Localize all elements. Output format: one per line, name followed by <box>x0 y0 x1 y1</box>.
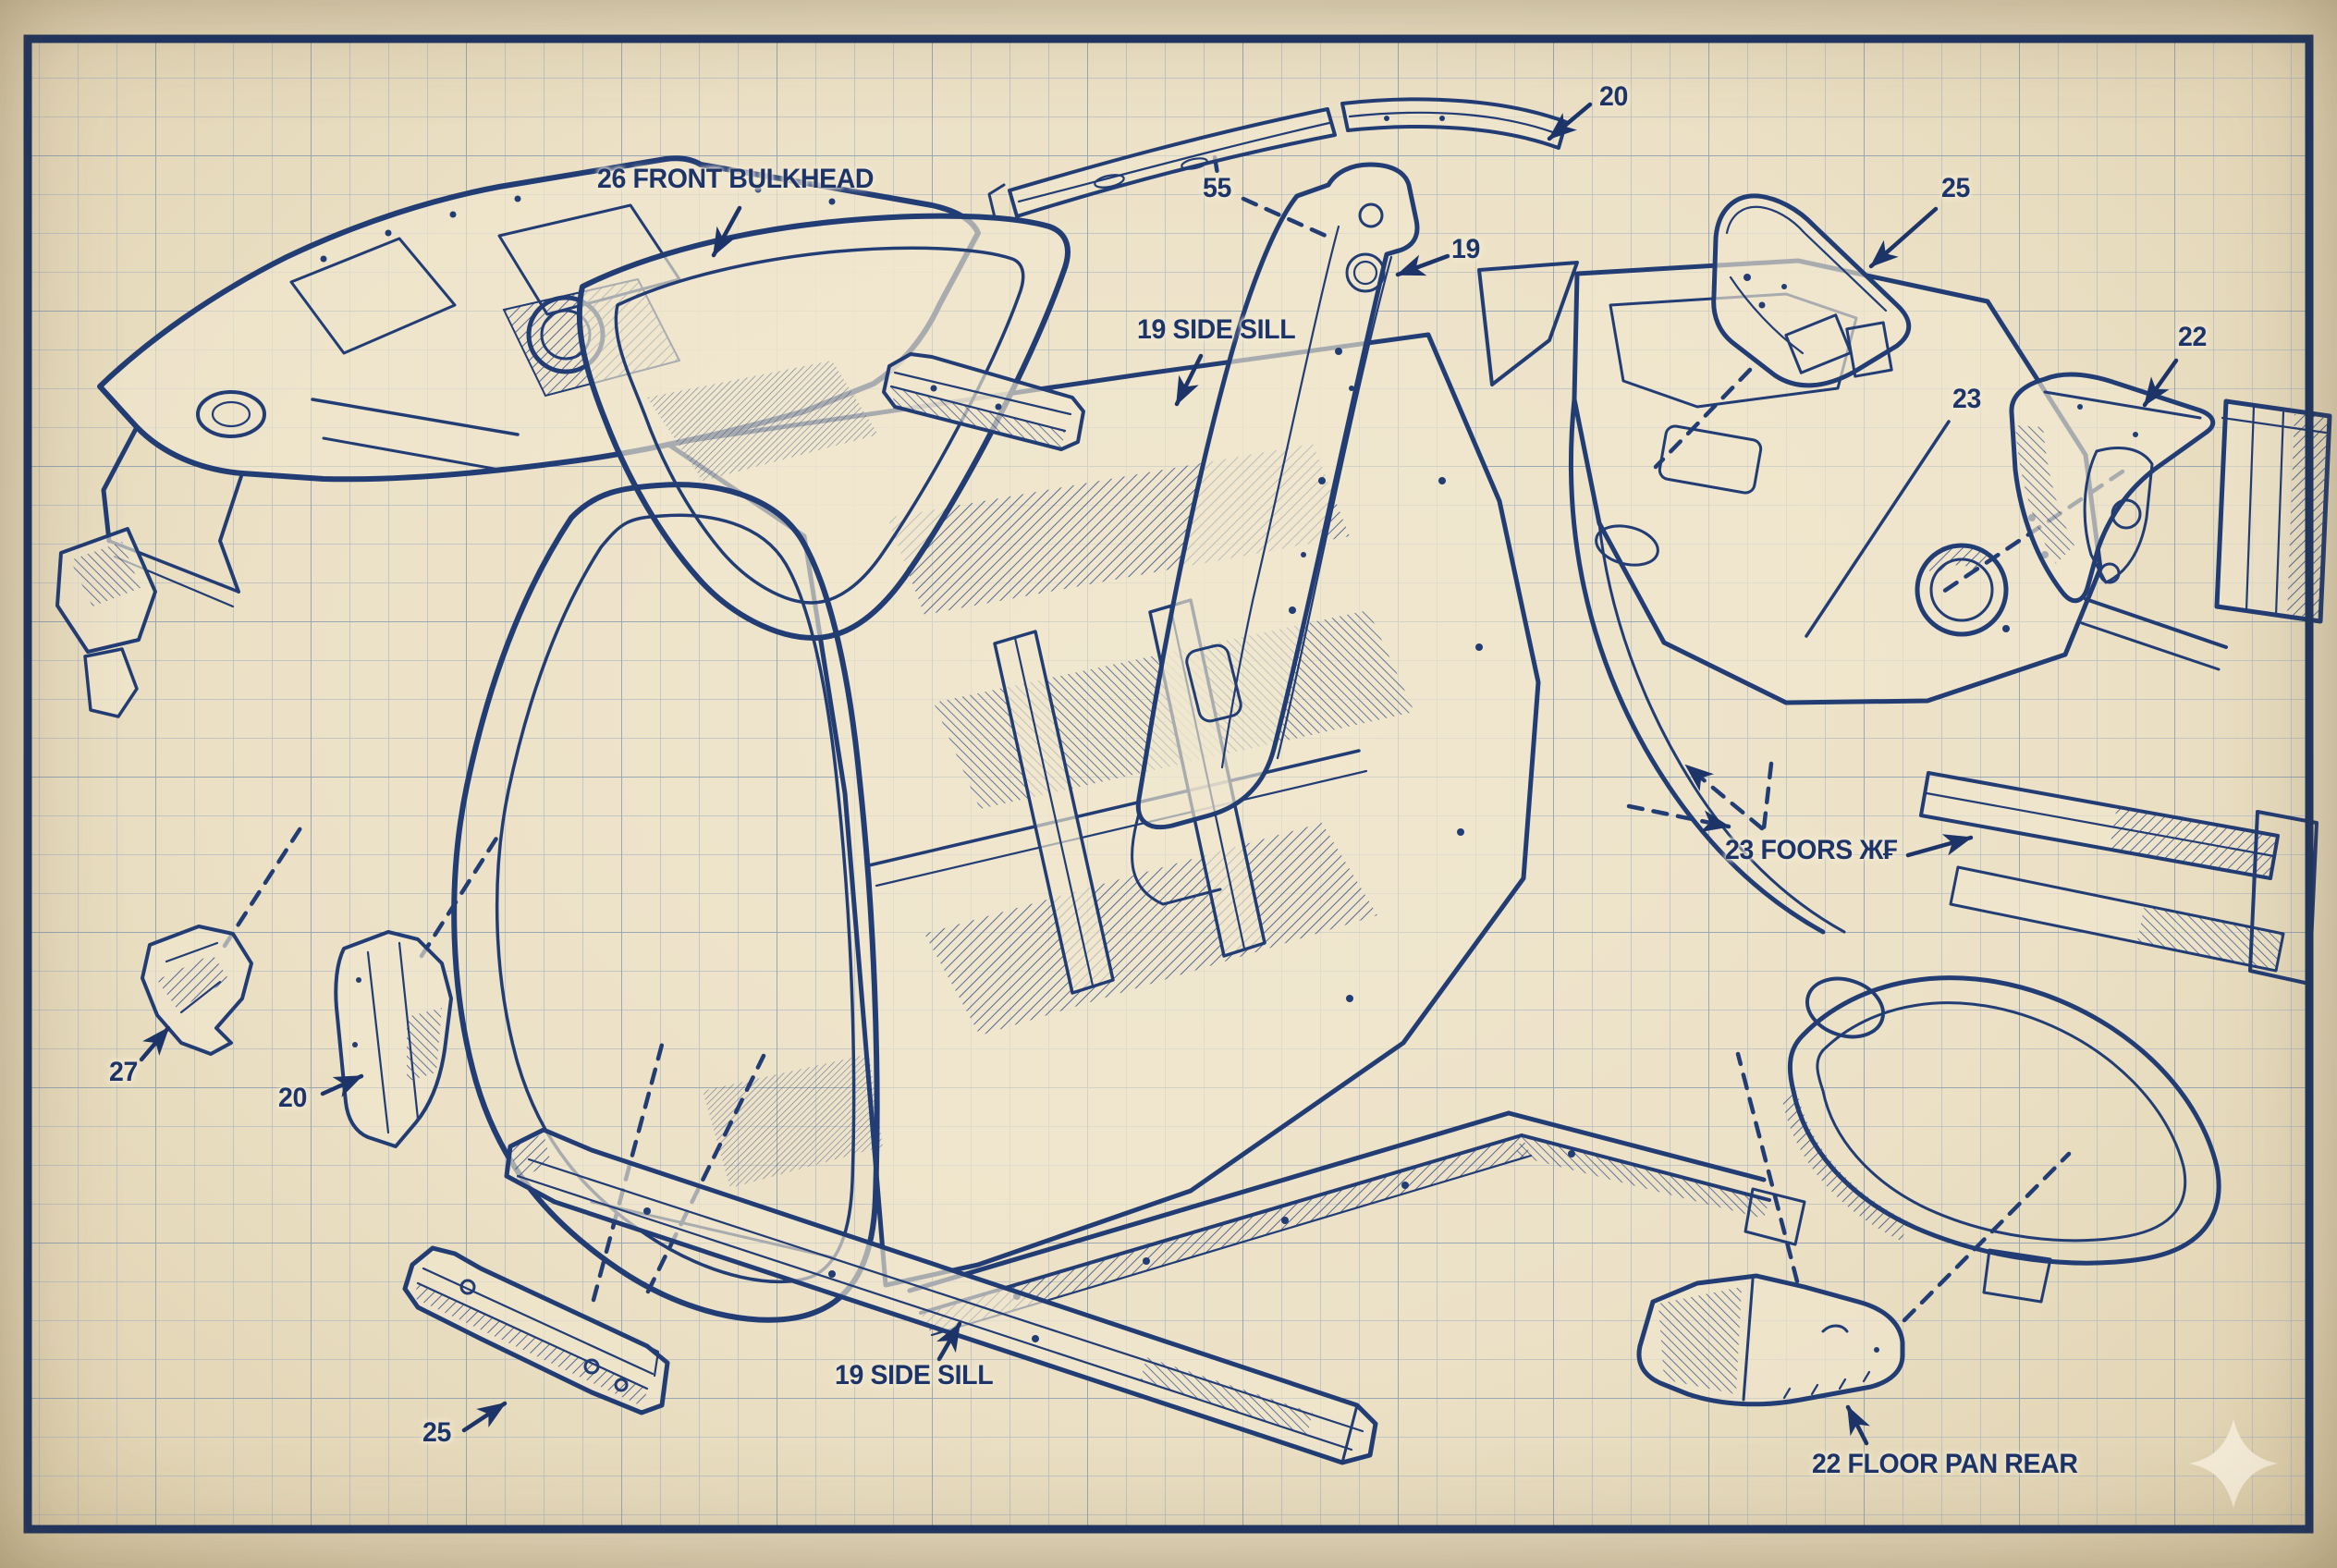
label-side-sill-upper: 19 SIDE SILL <box>1137 316 1295 344</box>
label-shock-tower-23: 23 <box>1952 386 1981 413</box>
label-front-bulkhead: 26 FRONT BULKHEAD <box>597 165 874 193</box>
label-quarter-25: 25 <box>1941 175 1970 202</box>
label-bracket-22: 22 <box>2178 324 2207 351</box>
label-b-pillar-19: 19 <box>1451 236 1480 263</box>
label-floors-23: 23 FOORS Ж₣ <box>1725 837 1897 864</box>
blueprint-page: 26 FRONT BULKHEAD 20 55 19 19 SIDE SILL … <box>0 0 2337 1568</box>
label-bracket-27: 27 <box>109 1059 138 1086</box>
label-floor-pan-rear: 22 FLOOR PAN REAR <box>1812 1451 2078 1478</box>
blueprint-drawing <box>0 0 2337 1568</box>
label-roof-rail-20: 20 <box>1599 83 1628 111</box>
label-channel-25: 25 <box>422 1419 451 1447</box>
label-55: 55 <box>1203 175 1231 202</box>
label-channel-20: 20 <box>278 1084 307 1112</box>
label-side-sill-lower: 19 SIDE SILL <box>835 1362 993 1390</box>
